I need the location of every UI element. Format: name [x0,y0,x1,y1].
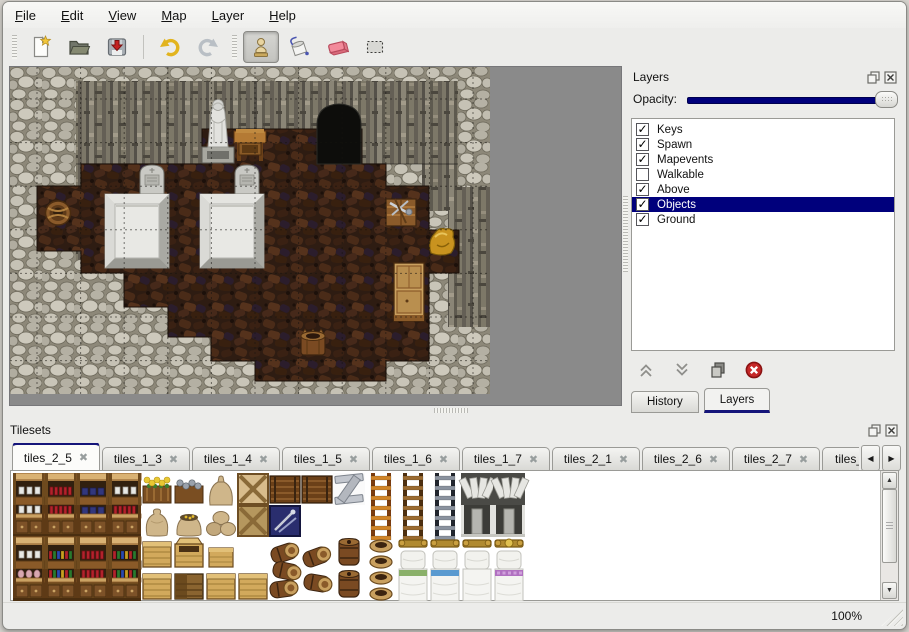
tileset-tab-tiles_2_1[interactable]: tiles_2_1✖ [552,447,640,470]
open-icon [67,35,91,59]
palette-tile-barrels_lying [301,544,333,593]
palette-tile-crate [143,542,171,567]
palette-tile-bed_head [463,540,491,569]
opacity-row: Opacity: [629,88,902,110]
scroll-down-icon[interactable]: ▼ [882,582,897,599]
opacity-slider[interactable] [685,91,898,107]
close-tab-icon[interactable]: ✖ [79,451,88,464]
app-window: FileEditViewMapLayerHelp [2,1,907,630]
palette-tile-shelf_top-mixed [109,537,141,569]
palette-tile-shelf_bot-red [45,505,77,537]
save-icon [105,35,129,59]
layer-row-above[interactable]: ✓Above [632,182,894,197]
palette-tile-ladder-dark [435,473,455,540]
tileset-tab-tiles_2_5[interactable]: tiles_2_5✖ [12,443,100,470]
tilesets-panel-titlebar: Tilesets [6,419,903,441]
palette-tile-shelf_top-blue [77,473,109,505]
tileset-tab-label: tiles_2_6 [654,452,702,466]
palette-tile-shelf_bot-jars [13,569,45,601]
toolbar-drag-handle[interactable] [12,35,17,59]
redo-icon [196,35,220,59]
map-canvas[interactable] [10,67,490,394]
tab-scroll-buttons: ◀ ▶ [861,445,901,471]
layer-label: Ground [657,214,695,226]
close-panel-icon[interactable] [883,70,898,85]
layer-visible-checkbox[interactable]: ✓ [636,123,649,136]
duplicate-icon [709,361,727,379]
dock-tabs: HistoryLayers [631,388,775,413]
menu-view[interactable]: View [108,8,136,23]
layer-list: ✓Keys✓Spawn✓MapeventsWalkable✓Above✓Obje… [631,118,895,351]
palette-tile-graybox [175,480,203,503]
move-down-layer-button[interactable] [669,358,695,382]
float-panel-icon[interactable] [867,423,882,438]
layer-label: Spawn [657,139,692,151]
palette-tile-bed_head-fancy [495,539,523,569]
undo-icon [158,35,182,59]
palette-tile-bed_foot-white [463,569,491,601]
close-tab-icon[interactable]: ✖ [619,453,628,466]
palette-tile-crate [207,574,235,599]
palette-tile-sack_top [210,476,233,505]
palette-tile-bed_head [431,540,459,569]
palette-tile-shelf_top-white [13,537,45,569]
map-viewport[interactable] [9,66,622,406]
toolbar [3,28,906,65]
palette-tile-arch_top [491,473,529,505]
open-tool-button[interactable] [61,31,97,63]
layers-panel-title: Layers [633,70,669,84]
palette-tile-bed_foot-purple [495,569,523,601]
new-icon [29,35,53,59]
scrollbar-thumb[interactable] [882,489,897,563]
layer-visible-checkbox[interactable]: ✓ [636,213,649,226]
menu-map[interactable]: Map [161,8,186,23]
tileset-tab-tiles_1_7[interactable]: tiles_1_7✖ [462,447,550,470]
zoom-level: 100% [831,609,862,623]
tileset-tabrow: tiles_2_5✖tiles_1_3✖tiles_1_4✖tiles_1_5✖… [12,443,859,470]
eraser-tool-button[interactable] [319,31,355,63]
layer-row-spawn[interactable]: ✓Spawn [632,137,894,152]
tile-palette-canvas[interactable] [13,473,557,601]
delete-icon [745,361,763,379]
palette-tile-shelf_bot-red [77,569,109,601]
palette-tile-bed_foot-green [399,569,427,601]
close-tab-icon[interactable]: ✖ [799,453,808,466]
map-object-platform [200,194,264,268]
status-bar: 100% [3,602,906,629]
delete-layer-button[interactable] [741,358,767,382]
palette-tile-shelf_bot-white [13,505,45,537]
move-up-icon [637,361,655,379]
layer-label: Mapevents [657,154,713,166]
palette-tile-cratex-dark [238,506,268,536]
duplicate-layer-button[interactable] [705,358,731,382]
tile-palette[interactable]: ▲ ▼ [10,470,899,601]
palette-tile-bed_head [399,540,427,569]
close-tab-icon[interactable]: ✖ [259,453,268,466]
horizontal-splitter[interactable] [9,406,621,418]
layer-label: Keys [657,124,683,136]
palette-tile-shelf_top-mixed [45,537,77,569]
tileset-tab-tiles_1_3[interactable]: tiles_1_3✖ [102,447,190,470]
layer-label: Above [657,184,690,196]
palette-tile-arch_dark [493,505,525,537]
palette-tile-shelf_bot-mixed [45,569,77,601]
tileset-tab-label: tiles_1_3 [114,452,162,466]
palette-tile-crate_small [209,548,233,567]
palette-tile-ladder-orange [371,473,391,540]
select-icon [363,35,387,59]
map-object-cabinet [394,263,424,321]
tileset-tab-label: tiles_2_7 [744,452,792,466]
layer-row-walkable[interactable]: Walkable [632,167,894,182]
palette-tile-shelf_top-white [109,473,141,505]
tileset-tab-tiles_1_6[interactable]: tiles_1_6✖ [372,447,460,470]
palette-tile-crate [239,574,267,599]
map-object-platform [105,194,169,268]
layer-visible-checkbox[interactable]: ✓ [636,153,649,166]
palette-tile-shelf_bot-red [109,505,141,537]
palette-tile-barrels_stack [339,539,359,598]
tileset-tab-tiles_1_4[interactable]: tiles_1_4✖ [192,447,280,470]
palette-tile-sack_pile [207,512,236,536]
palette-tile-plankz [333,473,365,505]
vertical-splitter[interactable] [622,66,629,404]
palette-tile-shelf_bot-mixed [109,569,141,601]
toolbar-separator [143,35,144,59]
layers-dock: Layers Opacity: ✓Keys✓Spawn✓MapeventsWal… [629,66,902,416]
toolbar-drag-handle[interactable] [232,35,237,59]
scroll-up-icon[interactable]: ▲ [882,472,897,489]
save-tool-button[interactable] [99,31,135,63]
palette-tile-bed_foot-blue [431,569,459,601]
tileset-tab-tiles[interactable]: tiles_ [822,447,859,470]
palette-tile-chest [270,476,300,503]
palette-tile-crate [143,574,171,599]
palette-tile-crate_open [175,538,203,567]
dock-tab-layers[interactable]: Layers [704,388,771,413]
tab-scroll-left-icon[interactable]: ◀ [861,445,880,471]
layer-label: Objects [657,199,696,211]
palette-tile-arch_top [459,473,497,505]
layer-visible-checkbox[interactable]: ✓ [636,198,649,211]
palette-tile-pots [370,540,392,600]
map-object-tombstone [235,165,259,196]
close-tab-icon[interactable]: ✖ [529,453,538,466]
close-tab-icon[interactable]: ✖ [349,453,358,466]
palette-tile-shelf_top-white [13,473,45,505]
move-down-icon [673,361,691,379]
tileset-tab-label: tiles_1_5 [294,452,342,466]
fill-tool-button[interactable] [281,31,317,63]
layer-visible-checkbox[interactable] [636,168,649,181]
palette-tile-planter [143,477,171,503]
close-panel-icon[interactable] [884,423,899,438]
palette-tile-shelf_top-red [77,537,109,569]
palette-tile-barrel_pile [269,541,302,599]
redo-tool-button[interactable] [190,31,226,63]
tilesets-dock: Tilesets tiles_2_5✖tiles_1_3✖tiles_1_4✖t… [6,419,903,603]
tileset-tab-tiles_2_6[interactable]: tiles_2_6✖ [642,447,730,470]
close-tab-icon[interactable]: ✖ [169,453,178,466]
float-panel-icon[interactable] [866,70,881,85]
tilesets-panel-title: Tilesets [10,423,51,437]
close-tab-icon[interactable]: ✖ [709,453,718,466]
layer-actions [633,356,767,384]
menu-file[interactable]: File [15,8,36,23]
tileset-tab-label: tiles_2_5 [24,451,72,465]
map-object-tombstone [140,165,164,196]
palette-tile-chest [302,476,332,503]
palette-tile-ladder-brown [403,473,423,540]
resize-grip[interactable] [881,606,903,626]
layer-row-keys[interactable]: ✓Keys [632,122,894,137]
tileset-tab-label: tiles_1_4 [204,452,252,466]
move-up-layer-button[interactable] [633,358,659,382]
palette-tile-shelf_bot-blue [77,505,109,537]
dock-tab-history[interactable]: History [631,391,699,413]
stamp-tool-button[interactable] [243,31,279,63]
tileset-tab-tiles_2_7[interactable]: tiles_2_7✖ [732,447,820,470]
layers-panel-titlebar: Layers [629,66,902,88]
map-object-toolcrate [386,199,416,226]
new-tool-button[interactable] [23,31,59,63]
tileset-tab-label: tiles_1_7 [474,452,522,466]
stamp-icon [249,35,273,59]
palette-tile-shelf_top-red [45,473,77,505]
layer-row-mapevents[interactable]: ✓Mapevents [632,152,894,167]
opacity-label: Opacity: [633,92,677,106]
select-tool-button[interactable] [357,31,393,63]
tileset-tab-label: tiles_ [835,452,859,466]
fill-icon [287,35,311,59]
tab-scroll-right-icon[interactable]: ▶ [882,445,901,471]
palette-scrollbar[interactable]: ▲ ▼ [880,471,898,600]
palette-tile-arch_dark [461,505,493,537]
layer-label: Walkable [657,169,704,181]
map-object-basket [46,201,71,225]
palette-tile-crate_dark [175,574,203,599]
undo-tool-button[interactable] [152,31,188,63]
layer-visible-checkbox[interactable]: ✓ [636,138,649,151]
opacity-track[interactable] [687,97,878,104]
palette-tile-sack [146,509,167,536]
palette-tile-sack_open [177,514,201,536]
map-object-barrel [301,329,325,355]
layer-row-objects[interactable]: ✓Objects [632,197,894,212]
palette-tile-navycrate [270,506,300,536]
menu-edit[interactable]: Edit [61,8,83,23]
tileset-tab-tiles_1_5[interactable]: tiles_1_5✖ [282,447,370,470]
tileset-tab-label: tiles_2_1 [564,452,612,466]
layer-row-ground[interactable]: ✓Ground [632,212,894,227]
close-tab-icon[interactable]: ✖ [439,453,448,466]
menu-help[interactable]: Help [269,8,296,23]
opacity-handle[interactable] [875,91,898,108]
layer-visible-checkbox[interactable]: ✓ [636,183,649,196]
palette-tile-cratex-light [238,474,268,504]
menu-bar: FileEditViewMapLayerHelp [3,2,906,28]
menu-layer[interactable]: Layer [212,8,245,23]
tileset-tab-label: tiles_1_6 [384,452,432,466]
eraser-icon [325,35,349,59]
